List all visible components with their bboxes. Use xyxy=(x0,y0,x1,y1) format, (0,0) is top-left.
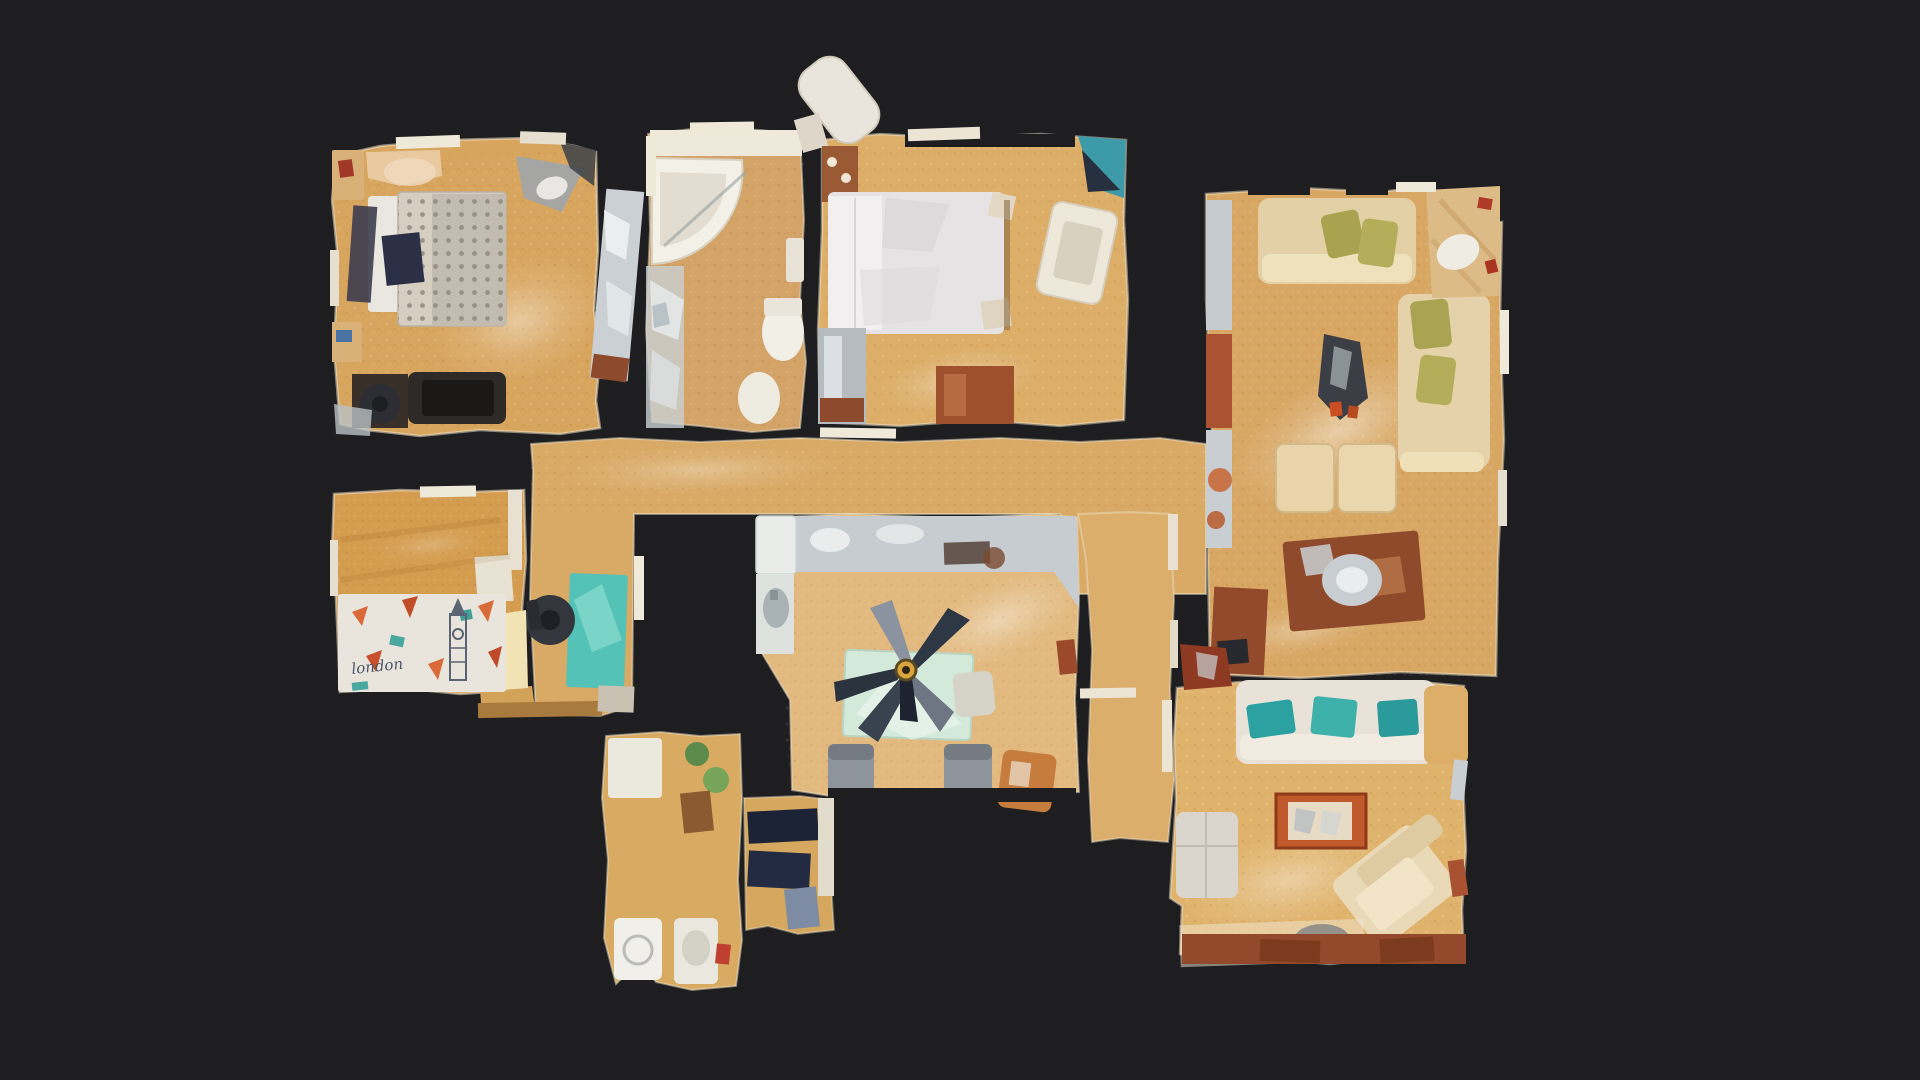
master-dresser-grain xyxy=(944,374,966,416)
family-pillow-teal1 xyxy=(1246,699,1296,739)
living-top-wall-gap1 xyxy=(1248,184,1310,195)
family-bottom-strip-dark1 xyxy=(1260,939,1321,963)
corridor-b-floor xyxy=(1078,512,1174,842)
dining-chair3 xyxy=(952,670,996,717)
living-pillow-olive3 xyxy=(1410,298,1453,350)
dining-chair1-back xyxy=(828,744,874,760)
wall-fragment-7 xyxy=(330,540,338,596)
living-sofa-armrest xyxy=(1400,452,1484,472)
master-bed-shadow xyxy=(1004,200,1010,330)
wall-fragment-15 xyxy=(646,136,656,196)
laundry-red-item xyxy=(715,943,731,964)
kitchen-counter-gleam1 xyxy=(810,528,850,552)
dining-chair4-cushion xyxy=(1009,761,1032,787)
living-wall-orange-blob1 xyxy=(1208,468,1232,492)
desk-nook-cabinet xyxy=(598,685,635,712)
floorplan-shapes: london xyxy=(330,49,1509,990)
desk-nook-chair-hub xyxy=(540,610,560,630)
bathroom-wall-sink xyxy=(786,238,804,282)
kitchen-counter-gleam2 xyxy=(876,524,924,544)
family-armchair-gold xyxy=(1424,686,1468,764)
desk-nook-wood-strip xyxy=(478,701,602,718)
wall-fragment-13 xyxy=(634,556,644,620)
wall-fragment-14 xyxy=(1162,700,1172,772)
living-ottoman1 xyxy=(1276,444,1334,512)
family-pillow-teal3 xyxy=(1377,699,1419,738)
living-top-wall-gap2 xyxy=(1346,186,1388,195)
ceiling-fan-hub xyxy=(902,666,910,674)
master-headboard-knob2 xyxy=(841,173,851,183)
bathroom-toilet-tank xyxy=(764,298,802,316)
bathroom-pedestal-sink xyxy=(738,372,780,424)
bedroom1-mirror-red xyxy=(591,354,630,383)
foyer-doormat1 xyxy=(747,808,819,844)
kitchen-faucet xyxy=(770,590,778,600)
kitchen-stove xyxy=(944,541,991,565)
family-sofa-seat xyxy=(1240,734,1432,760)
bedroom1-navy-blanket xyxy=(381,232,424,286)
master-bed-post1 xyxy=(988,192,1016,220)
dining-door-red-fragment xyxy=(1056,639,1077,675)
wall-fragment-1 xyxy=(396,135,460,149)
wall-fragment-9 xyxy=(1500,310,1509,374)
family-bottom-strip-dark2 xyxy=(1379,937,1434,964)
laundry-basket xyxy=(680,791,714,834)
master-headboard-knob1 xyxy=(827,157,837,167)
kitchen-counter-smudge xyxy=(983,547,1005,569)
master-duvet-fold2 xyxy=(860,266,940,326)
master-wardrobe-highlight xyxy=(824,336,842,408)
foyer-doormat2 xyxy=(747,850,811,889)
family-corner-gleam xyxy=(1196,652,1218,680)
bedroom1-nightstand-item2 xyxy=(336,330,352,342)
wall-fragment-12 xyxy=(1080,688,1136,699)
dining-chair2-back xyxy=(944,744,992,760)
kitchen-fridge xyxy=(756,516,796,574)
family-pillow-teal2 xyxy=(1310,696,1358,738)
bedroom2-bigben-clock xyxy=(453,629,463,639)
foyer-rug-blue xyxy=(784,886,820,929)
wall-fragment-2 xyxy=(520,131,566,145)
wall-fragment-8 xyxy=(420,486,476,498)
laundry-sink-basin xyxy=(682,930,710,966)
wall-fragment-11 xyxy=(820,427,896,438)
living-desk-chair-pad xyxy=(1336,567,1368,593)
laundry-washer xyxy=(614,918,662,980)
wall-fragment-6 xyxy=(330,250,339,306)
bedroom1-office-chair-hub xyxy=(372,396,388,412)
wall-fragment-4 xyxy=(908,127,980,142)
wall-fragment-5 xyxy=(1396,182,1436,192)
floorplan-viewport[interactable]: london xyxy=(0,0,1920,1080)
bedroom1-pillow-highlight xyxy=(384,158,436,186)
laundry-appliance xyxy=(608,738,662,798)
living-wall-unit-silver1 xyxy=(1206,200,1232,330)
living-cup2 xyxy=(1347,405,1359,418)
living-pillow-olive4 xyxy=(1415,354,1457,406)
living-pillow-olive2 xyxy=(1357,218,1399,269)
foyer-wall-fragment xyxy=(818,798,834,896)
living-wall-unit-wood xyxy=(1206,334,1232,428)
kitchen-bottom-wall-gap xyxy=(828,788,1076,802)
bedroom1-treadmill-belt xyxy=(422,380,494,416)
living-cup1 xyxy=(1329,401,1342,416)
dollhouse-floorplan[interactable]: london xyxy=(0,0,1920,1080)
wall-fragment-3 xyxy=(690,121,754,134)
corridor-b-fragment1 xyxy=(1168,514,1178,570)
laundry-plant2 xyxy=(703,767,729,793)
wall-fragment-10 xyxy=(1498,470,1507,526)
corridor-b-fragment2 xyxy=(1170,620,1178,668)
master-wardrobe-wood xyxy=(820,398,864,422)
laundry-plant1 xyxy=(685,742,709,766)
bedroom2-print-teal3 xyxy=(352,681,369,691)
living-ottoman2 xyxy=(1338,444,1396,512)
bedroom1-nightstand-item xyxy=(338,159,354,178)
living-wall-orange-blob2 xyxy=(1207,511,1225,529)
